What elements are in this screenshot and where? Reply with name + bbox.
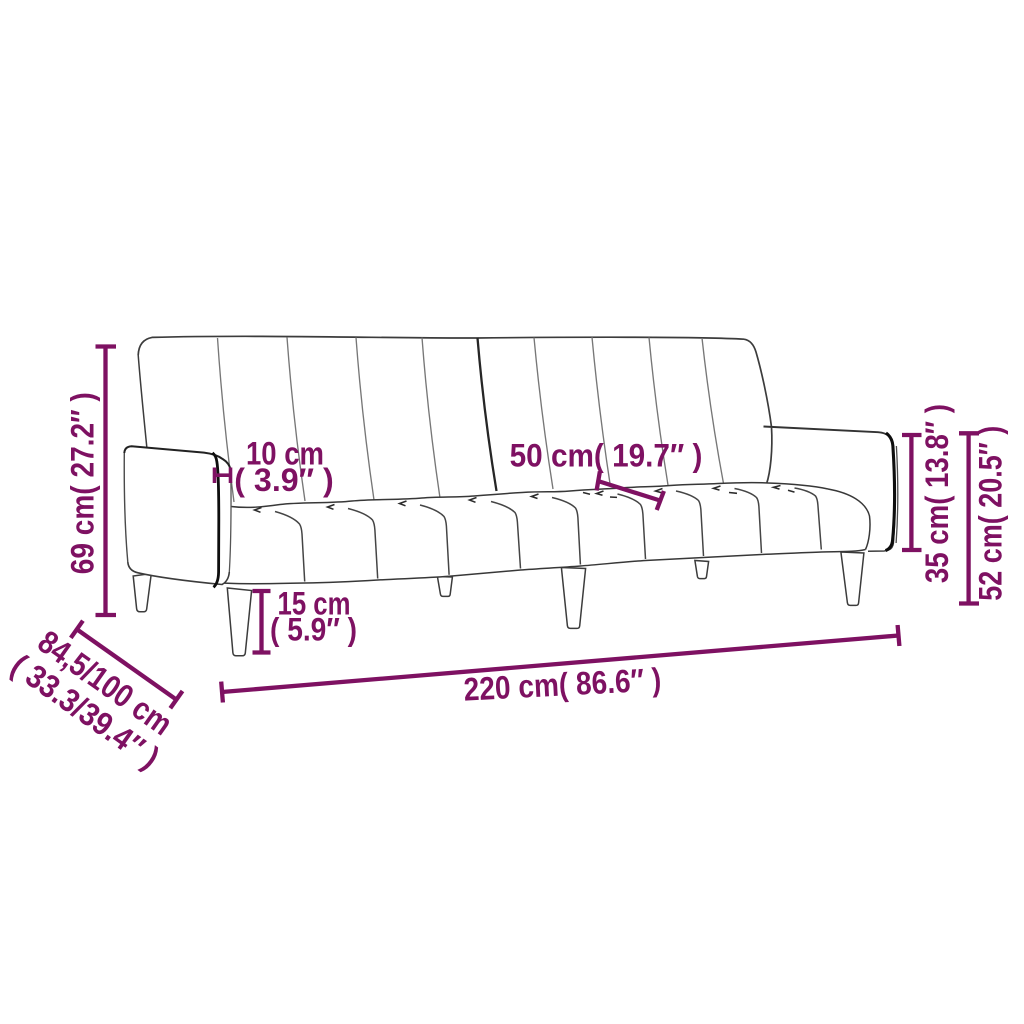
svg-text:52 cm( 20.5″ ): 52 cm( 20.5″ ) — [973, 426, 1009, 601]
svg-text:( 3.9″ ): ( 3.9″ ) — [234, 462, 334, 498]
svg-text:69 cm( 27.2″ ): 69 cm( 27.2″ ) — [65, 392, 101, 574]
svg-text:35 cm( 13.8″ ): 35 cm( 13.8″ ) — [919, 404, 955, 583]
svg-text:( 5.9″ ): ( 5.9″ ) — [270, 612, 357, 648]
svg-text:50 cm( 19.7″ ): 50 cm( 19.7″ ) — [510, 438, 703, 474]
